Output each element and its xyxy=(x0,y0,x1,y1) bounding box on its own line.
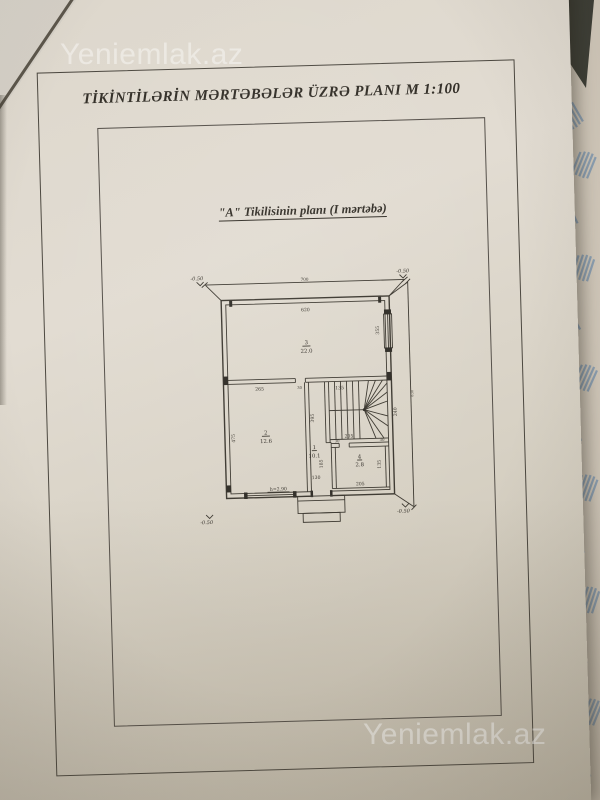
dim-room3-width: 620 xyxy=(301,307,310,313)
dim-room2-width: 265 xyxy=(255,386,264,392)
dim-room1-depth2: 185 xyxy=(319,459,325,468)
room-3-area: 22.0 xyxy=(300,349,313,355)
left-edge-shadow xyxy=(0,95,7,405)
photo-scene: TİKİNTİLƏRİN MƏRTƏBƏLƏR ÜZRƏ PLANI M 1:1… xyxy=(0,0,600,800)
dim-room2-depth: 475 xyxy=(231,434,237,443)
room-4-area: 2.8 xyxy=(355,462,364,468)
dim-room4-jamb1: 30 xyxy=(335,438,341,443)
room-labels: 620 3 22.0 355 265 30 2 12.6 475 h=2.90 … xyxy=(227,305,401,494)
floor-plan-drawing: 700 830 -0.50 -0.50 -0.50 -0.50 xyxy=(190,265,427,541)
room-2-number: 2 xyxy=(264,430,268,436)
openings xyxy=(239,309,397,524)
paper-sheet: TİKİNTİLƏRİN MƏRTƏBƏLƏR ÜZRƏ PLANI M 1:1… xyxy=(0,0,591,800)
room-3-number: 3 xyxy=(305,340,309,346)
dim-room4-depth: 135 xyxy=(377,460,383,469)
dim-stairs-bottom: 205 xyxy=(344,433,353,439)
dim-room1-depth: 395 xyxy=(310,414,316,423)
dim-room3-depth: 355 xyxy=(375,326,381,335)
dim-stairs-top: 135 xyxy=(335,385,344,391)
dim-room4-width: 205 xyxy=(356,481,365,487)
elev-top-right: -0.50 xyxy=(396,268,410,274)
room-1-area: 10.1 xyxy=(308,453,320,459)
elev-top-left: -0.50 xyxy=(190,276,204,282)
room-4-number: 4 xyxy=(358,454,362,460)
elev-bottom-right: -0.50 xyxy=(397,508,411,514)
porch xyxy=(298,495,346,522)
dim-room4-jamb2: 30 xyxy=(380,437,386,442)
dim-overall-height: 830 xyxy=(410,389,414,397)
dim-overall-width: 700 xyxy=(300,277,308,282)
dim-door-gap: 30 xyxy=(297,385,303,390)
room-2-area: 12.6 xyxy=(260,439,273,445)
dim-room1-width: 130 xyxy=(312,475,321,481)
interior-walls xyxy=(223,372,394,494)
dim-stairs-side: 240 xyxy=(393,407,399,416)
elev-bottom-left: -0.50 xyxy=(200,520,214,526)
